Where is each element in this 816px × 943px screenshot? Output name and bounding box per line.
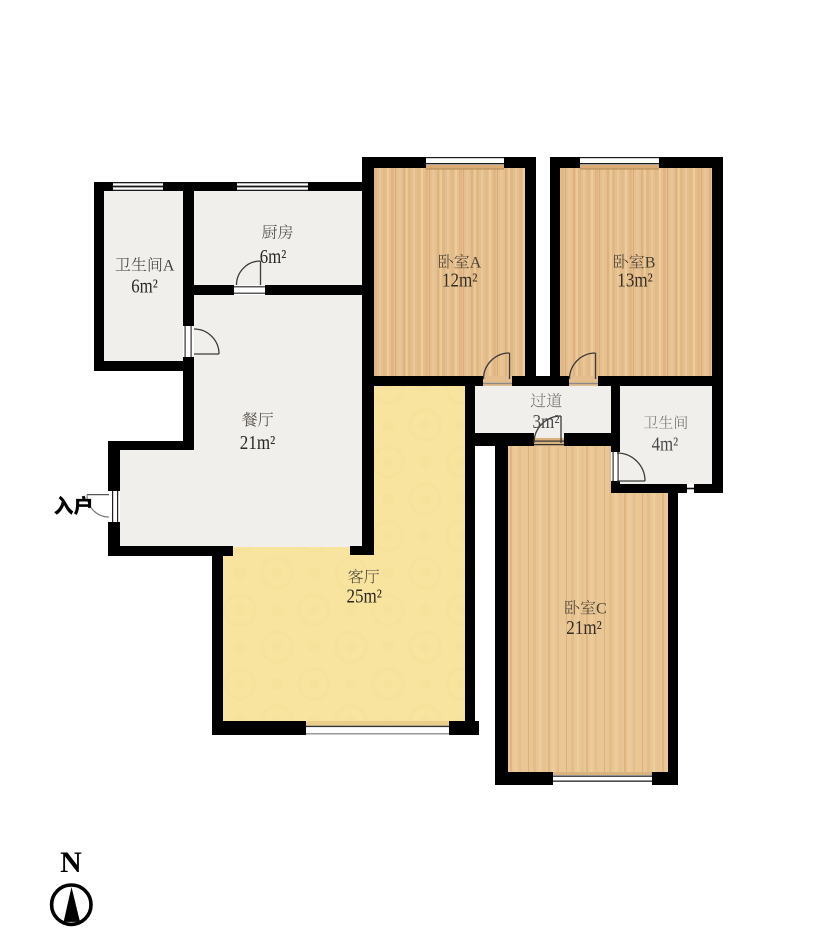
svg-text:21m²: 21m² bbox=[566, 617, 601, 639]
svg-text:4m²: 4m² bbox=[652, 434, 679, 456]
svg-text:N: N bbox=[60, 846, 82, 879]
svg-text:13m²: 13m² bbox=[617, 270, 652, 292]
svg-text:6m²: 6m² bbox=[131, 276, 158, 298]
svg-text:6m²: 6m² bbox=[260, 246, 287, 268]
svg-text:21m²: 21m² bbox=[240, 432, 275, 454]
svg-text:3m²: 3m² bbox=[533, 411, 560, 433]
svg-text:25m²: 25m² bbox=[347, 586, 382, 608]
svg-text:A: A bbox=[163, 258, 175, 275]
svg-text:12m²: 12m² bbox=[442, 270, 477, 292]
svg-text:C: C bbox=[596, 601, 607, 618]
